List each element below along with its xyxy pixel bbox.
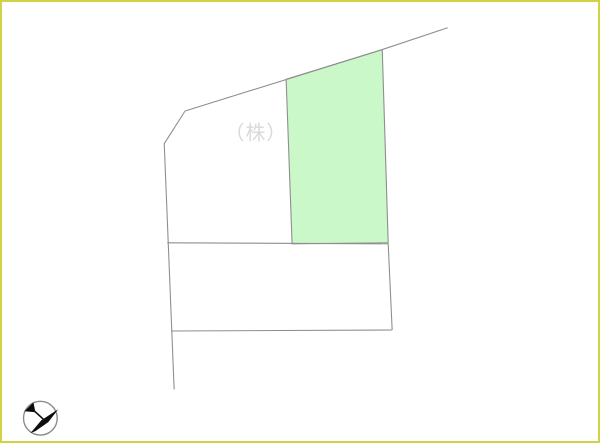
compass-needle-arrowhead [25, 402, 36, 412]
compass-needle-body [30, 409, 58, 433]
boundary-line-lower-lot-south [171, 330, 392, 331]
site-plan-frame: （株）ベ [0, 0, 600, 443]
compass-circle [24, 401, 58, 435]
highlighted-lot [286, 50, 388, 244]
site-plan-canvas: （株）ベ [2, 2, 598, 441]
north-compass-icon [24, 401, 59, 435]
boundary-line-west [164, 111, 185, 389]
boundary-line-lower-lot-east [388, 244, 392, 330]
